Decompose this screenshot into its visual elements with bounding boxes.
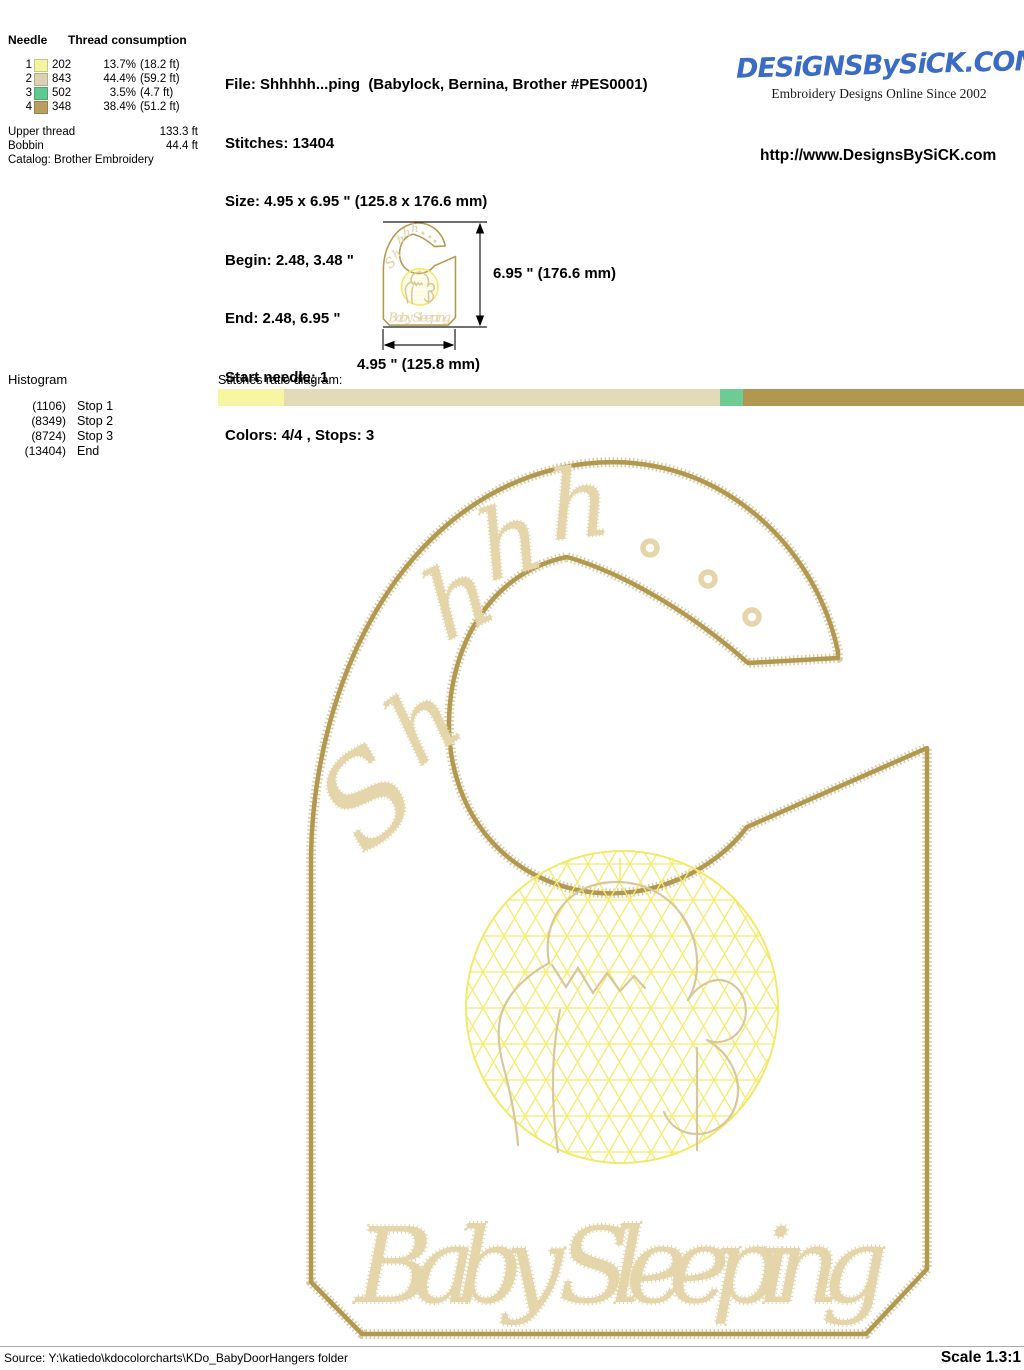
- caption-baby-sleeping: Baby Sleeping: [388, 310, 451, 324]
- arc-lettering: S h h h h: [291, 445, 616, 878]
- design-preview-canvas: S h h h h Baby Sleeping: [0, 0, 1024, 1370]
- design-thumbnail: S h h h h Baby Sleeping: [382, 222, 456, 326]
- footer-divider: [0, 1346, 1024, 1347]
- dot-2: [701, 572, 715, 586]
- ellipsis-dots: [422, 232, 436, 242]
- door-hanger-design: S h h h h Baby Sleeping: [382, 222, 456, 326]
- caption-baby-sleeping: Baby Sleeping: [354, 1205, 888, 1327]
- dot-1: [643, 541, 657, 555]
- dot-1: [422, 232, 424, 234]
- ellipsis-dots: [643, 541, 759, 624]
- figure-torso-left: [412, 287, 413, 304]
- dot-2: [429, 236, 431, 238]
- dot-3: [434, 240, 436, 242]
- door-hanger-design: S h h h h Baby Sleeping: [291, 445, 927, 1334]
- arc-letter-h4: h: [411, 222, 420, 236]
- arc-letter-h4: h: [543, 445, 616, 563]
- scale-indicator: Scale 1.3:1: [0, 1349, 1021, 1367]
- dot-3: [745, 610, 759, 624]
- width-dimension-label: 4.95 " (125.8 mm): [357, 356, 480, 373]
- height-dimension-label: 6.95 " (176.6 mm): [493, 265, 616, 282]
